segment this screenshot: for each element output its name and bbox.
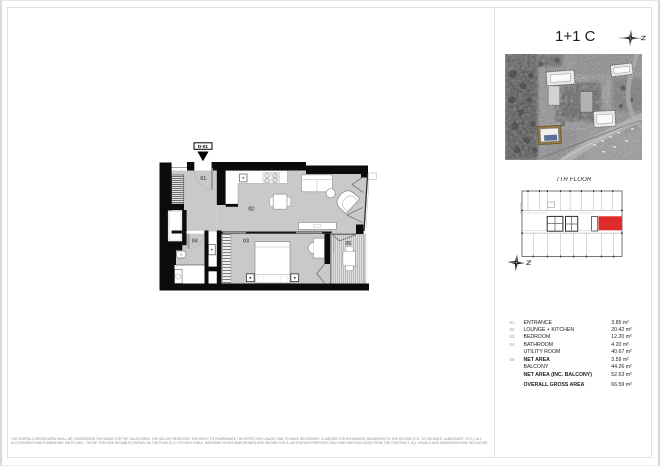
svg-text:05: 05 (345, 241, 351, 247)
svg-text:03: 03 (243, 238, 249, 244)
svg-text:01: 01 (200, 176, 206, 182)
svg-text:02: 02 (248, 207, 254, 213)
svg-text:04: 04 (192, 239, 198, 245)
svg-text:D-01: D-01 (198, 144, 208, 149)
